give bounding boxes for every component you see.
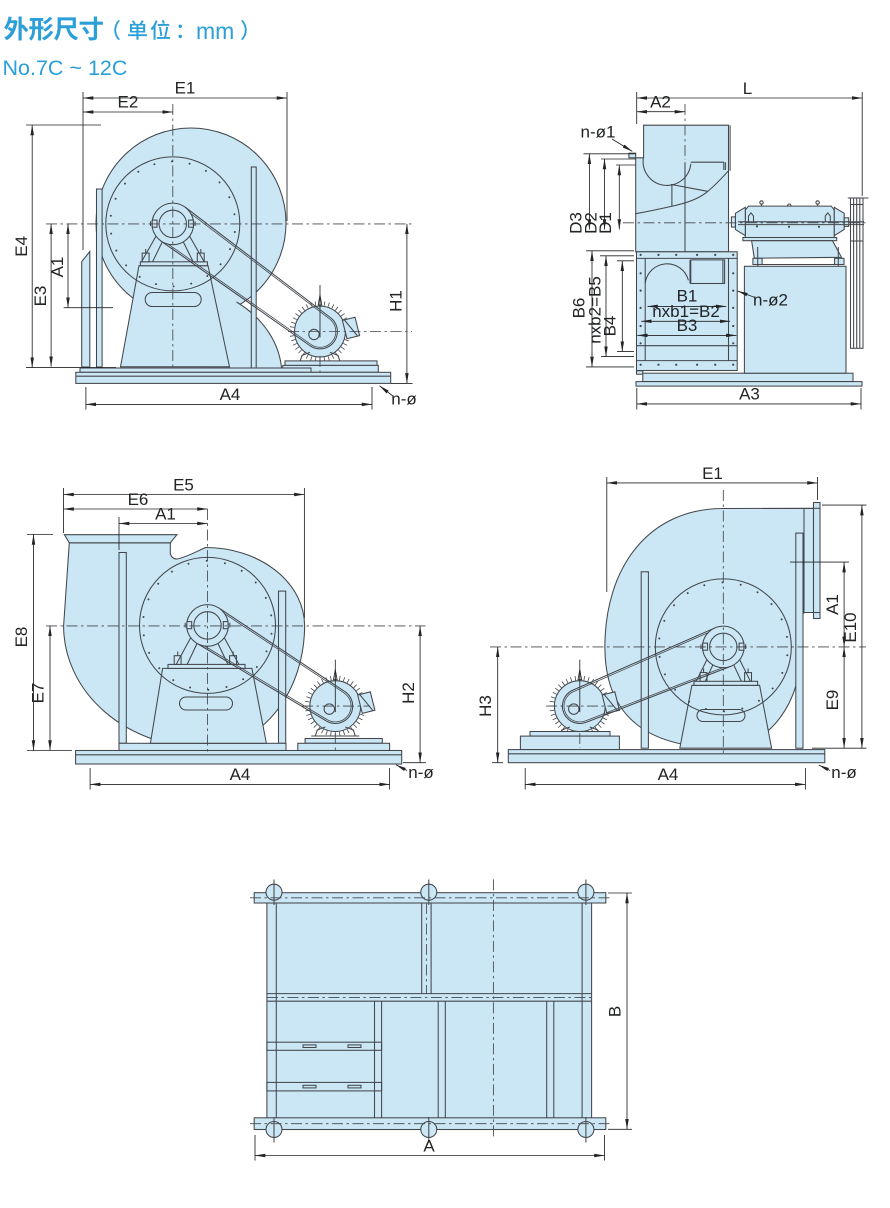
svg-text:E10: E10 xyxy=(841,612,860,642)
svg-text:H1: H1 xyxy=(387,290,406,312)
svg-text:E7: E7 xyxy=(29,683,48,704)
svg-text:E2: E2 xyxy=(118,93,139,112)
svg-text:E6: E6 xyxy=(128,490,149,509)
svg-text:L: L xyxy=(743,79,752,98)
svg-text:n-ø: n-ø xyxy=(831,763,857,782)
svg-text:H2: H2 xyxy=(399,682,418,704)
svg-text:No.7C ~ 12C: No.7C ~ 12C xyxy=(3,56,128,80)
svg-text:n-ø2: n-ø2 xyxy=(753,291,788,310)
svg-text:mm: mm xyxy=(196,18,234,44)
svg-text:A1: A1 xyxy=(155,505,176,524)
svg-text:n-ø: n-ø xyxy=(391,390,417,409)
svg-text:A3: A3 xyxy=(739,385,760,404)
svg-text:n-ø: n-ø xyxy=(408,763,434,782)
svg-text:E1: E1 xyxy=(175,79,196,98)
svg-text:A4: A4 xyxy=(230,765,251,784)
svg-text:A2: A2 xyxy=(650,93,671,112)
svg-text:D1: D1 xyxy=(596,212,615,234)
svg-text:H3: H3 xyxy=(476,695,495,717)
svg-text:E3: E3 xyxy=(31,286,50,307)
svg-text:B4: B4 xyxy=(601,316,620,337)
svg-text:E4: E4 xyxy=(12,236,31,257)
svg-text:B3: B3 xyxy=(677,316,698,335)
svg-text:A1: A1 xyxy=(48,257,67,278)
svg-text:E9: E9 xyxy=(823,690,842,711)
svg-text:A4: A4 xyxy=(220,385,241,404)
svg-text:A1: A1 xyxy=(823,594,842,615)
svg-text:A4: A4 xyxy=(658,765,679,784)
svg-text:B: B xyxy=(606,1006,625,1017)
svg-text:E1: E1 xyxy=(702,464,723,483)
svg-text:A: A xyxy=(423,1137,435,1156)
svg-text:E8: E8 xyxy=(12,627,31,648)
svg-text:n-ø1: n-ø1 xyxy=(581,123,616,142)
svg-text:E5: E5 xyxy=(173,476,194,495)
